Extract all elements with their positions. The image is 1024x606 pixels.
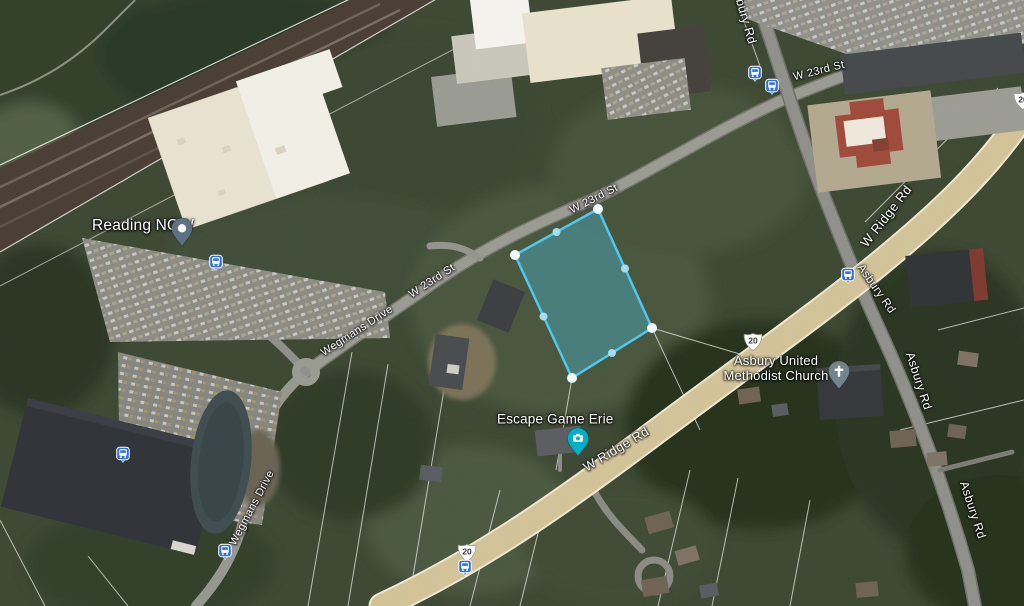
svg-text:20: 20 [748,336,758,346]
bus-stop-icon[interactable] [209,255,223,272]
bus-stop-icon[interactable] [218,544,232,561]
church-pin[interactable] [827,360,851,390]
parcel-edge-handle[interactable] [540,313,548,321]
bus-stop-icon[interactable] [765,79,779,96]
pin-dot-icon [178,224,186,232]
reading-now-pin[interactable] [170,217,194,247]
parcel-corner-handle[interactable] [593,204,603,214]
parcel-corner-handle[interactable] [647,323,657,333]
satellite-map[interactable]: W 23rd St W 23rd St W 23rd St Wegmans Dr… [0,0,1024,606]
bus-stop-icon[interactable] [116,447,130,464]
parcel-corner-handle[interactable] [567,373,577,383]
escape-game-pin[interactable] [566,427,590,457]
bus-stop-icon[interactable] [458,560,472,577]
bus-stop-icon[interactable] [748,66,762,83]
parcel-corner-handle[interactable] [510,250,520,260]
parcel-edge-handle[interactable] [553,228,561,236]
imagery-noise [0,0,1024,606]
parcel-edge-handle[interactable] [608,349,616,357]
svg-text:20: 20 [1018,95,1024,105]
us-route-20-shield-clipped: 20 [1012,91,1024,111]
satellite-imagery [0,0,1024,606]
camera-icon [573,434,583,442]
svg-text:20: 20 [462,547,472,557]
parcel-edge-handle[interactable] [621,265,629,273]
us-route-20-shield: 20 [742,332,764,352]
bus-stop-icon[interactable] [841,268,855,285]
